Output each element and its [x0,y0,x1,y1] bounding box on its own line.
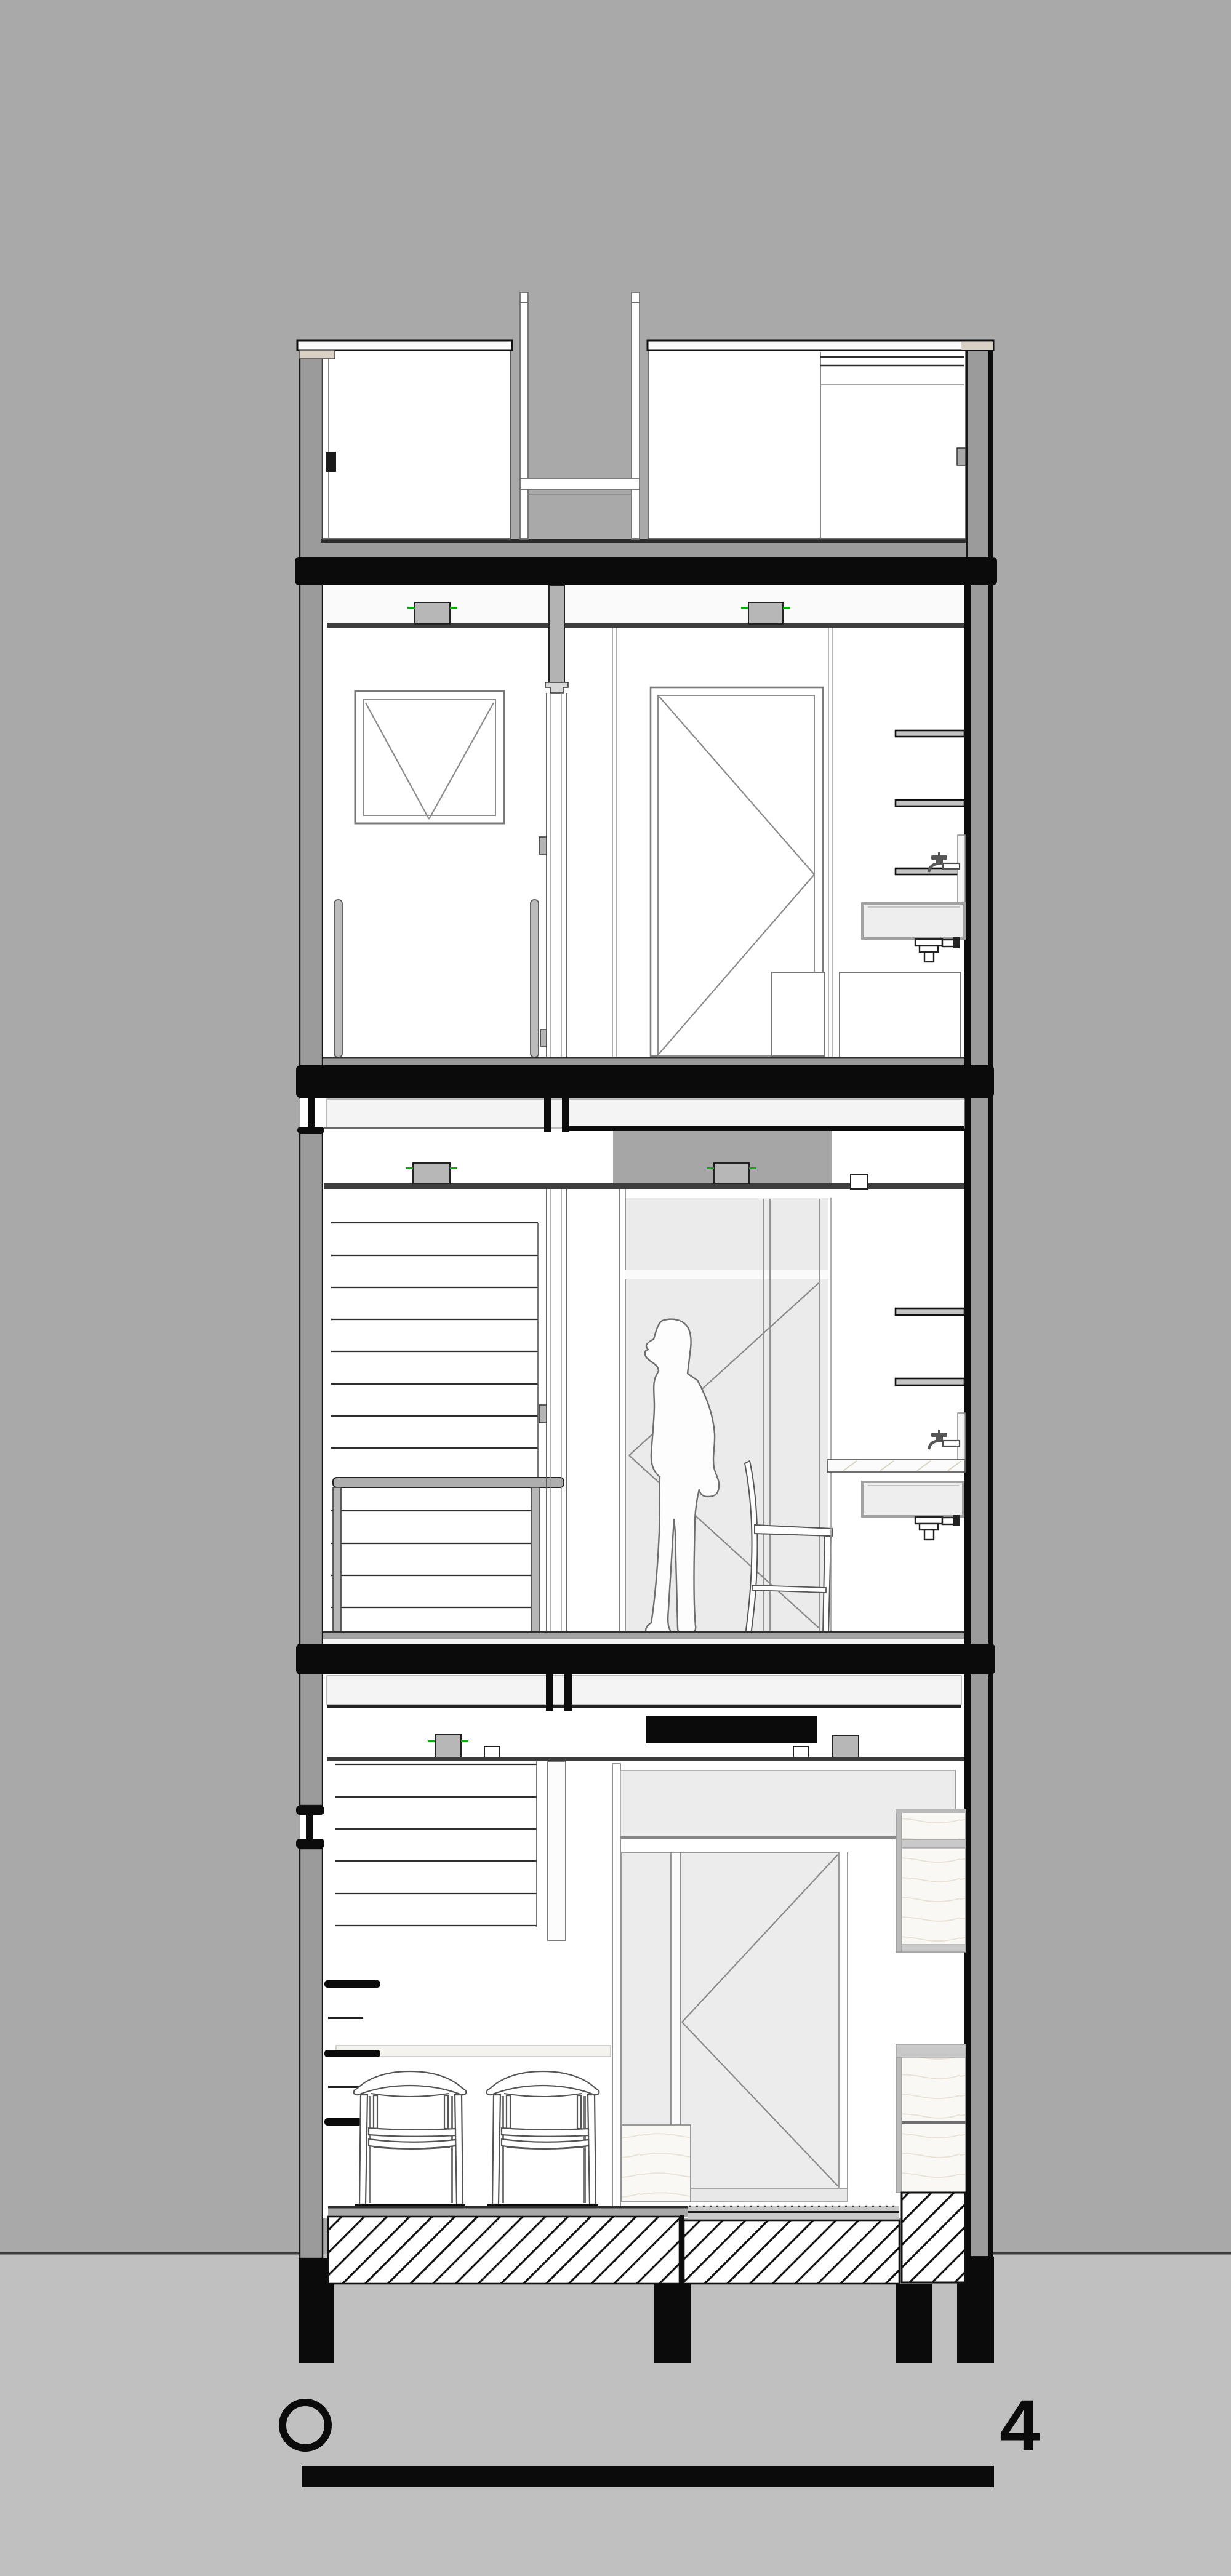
svg-text:4: 4 [1000,2385,1040,2466]
